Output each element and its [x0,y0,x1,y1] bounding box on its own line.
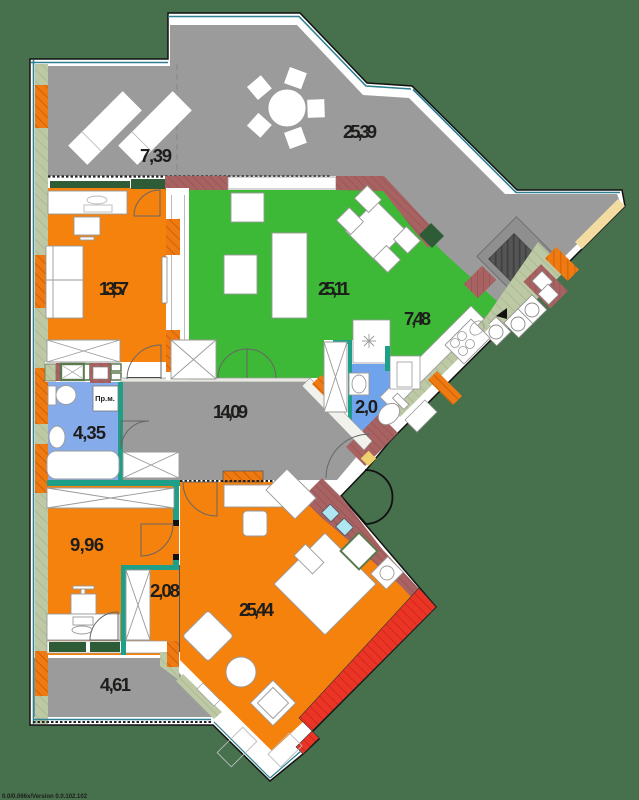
svg-text:7,48: 7,48 [404,308,431,329]
svg-text:25,44: 25,44 [239,599,275,620]
svg-text:0.0/0.066x/Version 0.0.102.102: 0.0/0.066x/Version 0.0.102.102 [2,794,88,800]
svg-text:9,96: 9,96 [70,534,104,555]
svg-text:Пр.м.: Пр.м. [95,394,115,403]
svg-text:14,09: 14,09 [213,401,248,422]
svg-text:4,35: 4,35 [73,422,106,443]
svg-text:2,0: 2,0 [355,396,378,417]
svg-text:25,11: 25,11 [318,278,350,299]
svg-text:4,61: 4,61 [100,674,131,695]
svg-text:25,39: 25,39 [343,121,377,142]
svg-text:2,08: 2,08 [150,580,180,601]
svg-text:13,57: 13,57 [99,278,129,299]
svg-text:7,39: 7,39 [140,145,172,166]
